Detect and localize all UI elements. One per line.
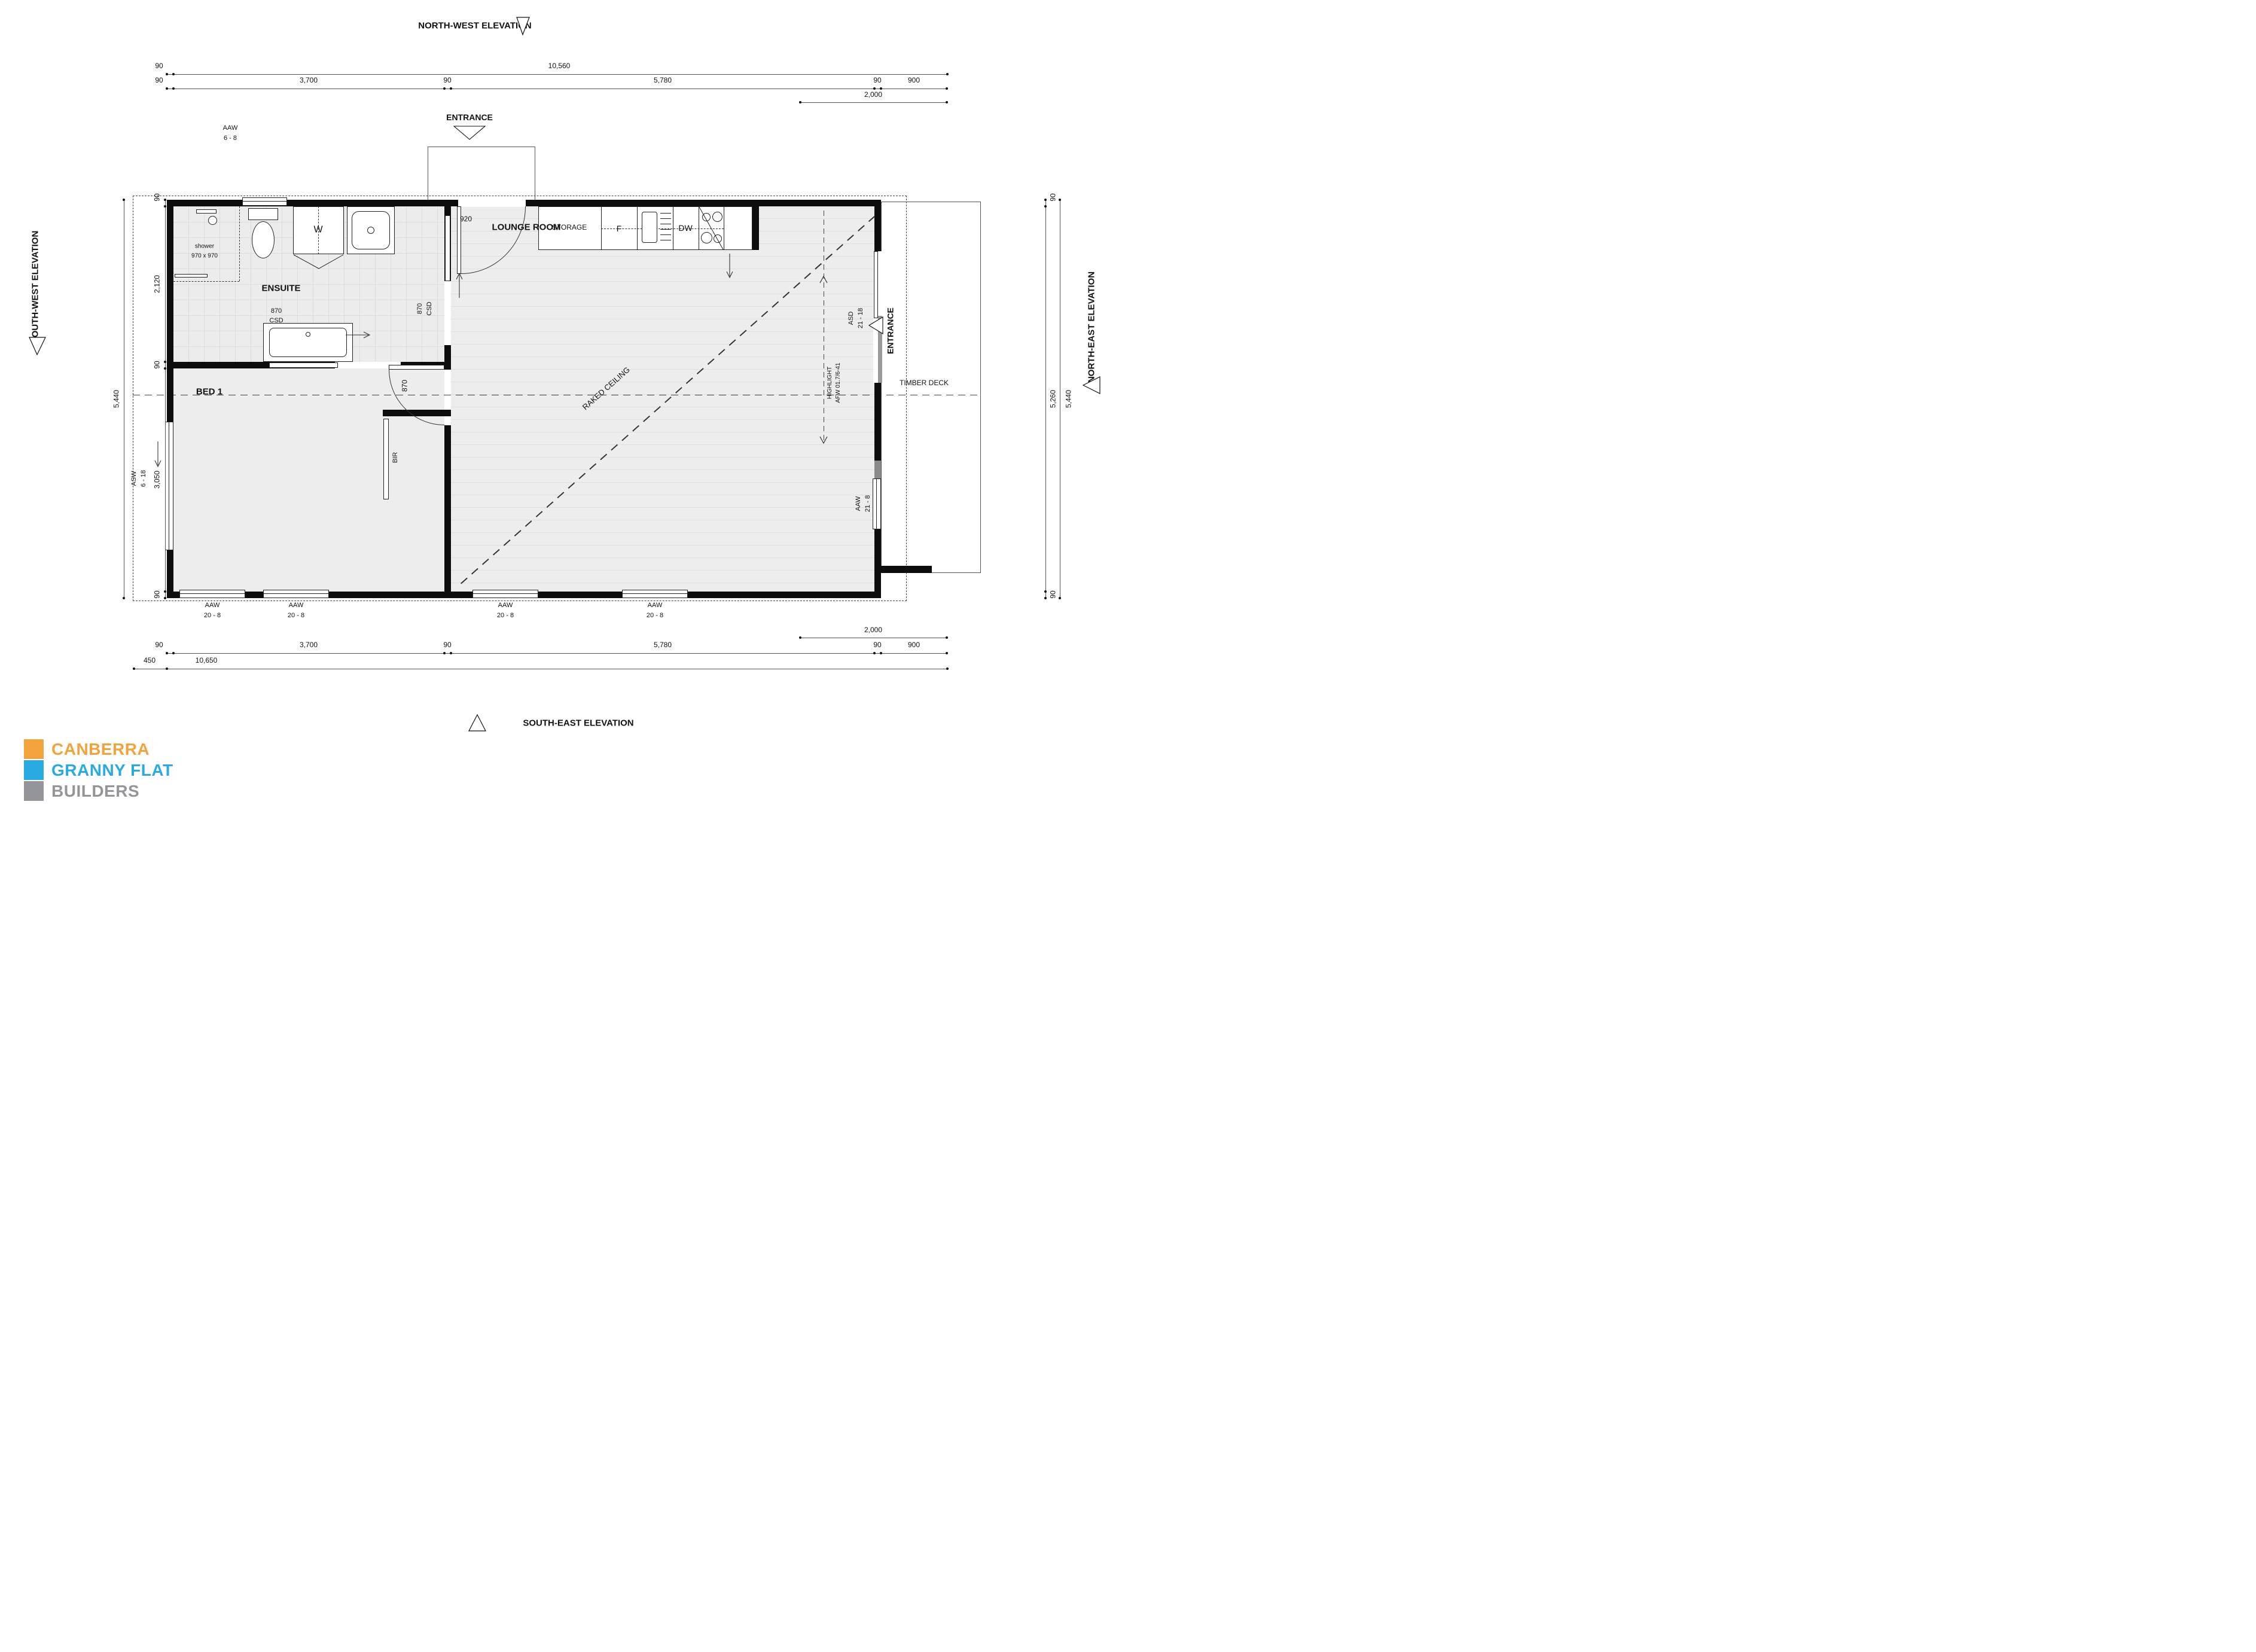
vanity-tap-icon (306, 332, 310, 337)
title-south-west-elevation: SOUTH-WEST ELEVATION (31, 231, 42, 344)
shower-rail-icon (175, 274, 208, 278)
label-window-b2-size: 20 - 8 (288, 611, 304, 620)
dim-top-90c: 90 (443, 76, 451, 86)
laundry-tub-drain-icon (367, 227, 374, 234)
front-door-opening (458, 198, 526, 207)
bed-door-leaf (389, 365, 444, 370)
dim-tick (164, 367, 166, 370)
dim-line-bottom-segments (167, 653, 947, 654)
entrance-top-arrow-icon (453, 126, 486, 141)
label-entrance-side: ENTRANCE (885, 307, 896, 354)
toilet-bowl-icon (252, 221, 275, 258)
entry-arrow-up-icon (455, 272, 464, 298)
label-shower: shower (195, 243, 214, 251)
dim-tick (166, 667, 168, 670)
dim-left-2120: 2,120 (153, 275, 162, 293)
dim-tick (164, 590, 166, 593)
window-top-aaw-6-8 (242, 197, 287, 206)
dim-tick (164, 361, 166, 363)
floor-plan-sheet: ENSUITE BED 1 LOUNGE ROOM STORAGE TIMBER… (0, 0, 1128, 826)
dim-left-3050: 3,050 (153, 471, 162, 489)
dim-right-5440: 5,440 (1065, 390, 1074, 408)
window-left-asw-6-18 (165, 422, 173, 550)
label-entrance-top: ENTRANCE (446, 112, 493, 123)
dim-left-90b: 90 (153, 361, 162, 368)
label-window-b4-size: 20 - 8 (647, 611, 663, 620)
logo-text-canberra: CANBERRA (51, 739, 150, 759)
dim-left-90: 90 (153, 193, 162, 201)
dim-right-5260: 5,260 (1049, 390, 1058, 408)
window-bottom-aaw-3 (472, 590, 538, 598)
logo-text-builders: BUILDERS (51, 781, 139, 801)
window-bottom-aaw-4 (622, 590, 688, 598)
dim-bot-3700: 3,700 (300, 641, 318, 650)
dim-tick (873, 87, 876, 90)
window-bottom-aaw-2 (263, 590, 329, 598)
logo-square-blue (24, 760, 44, 780)
south-east-marker-icon (468, 714, 487, 732)
bed-window-arrow-down-icon (154, 441, 162, 468)
dim-top-90b: 90 (155, 76, 163, 86)
label-window-b3-size: 20 - 8 (497, 611, 514, 620)
dim-bot-90c: 90 (873, 641, 881, 650)
label-ens-csd: CSD (269, 316, 283, 325)
toilet-cistern-icon (248, 208, 278, 220)
label-hall-csd-870: 870 (416, 303, 425, 314)
dim-tick (443, 87, 446, 90)
label-window-b2-aaw: AAW (289, 601, 304, 609)
hall-cavity-slider-leaf (445, 215, 450, 281)
dim-bot-10650: 10,650 (196, 656, 218, 666)
label-asd-size: 21 - 18 (857, 308, 865, 328)
wall-hall-b (444, 345, 451, 370)
north-west-marker-icon (516, 17, 531, 36)
label-window-left-asw: ASW (130, 471, 139, 486)
dim-tick (873, 652, 876, 654)
dim-tick (443, 652, 446, 654)
dim-line-right-overall (1060, 200, 1060, 598)
dim-tick (880, 87, 882, 90)
dim-bottom-2000: 2,000 (864, 626, 882, 635)
dim-line-left-overall (124, 200, 124, 598)
label-timber-deck: TIMBER DECK (900, 379, 949, 388)
dim-line-top-segments (167, 89, 947, 89)
room-label-ensuite: ENSUITE (261, 282, 300, 294)
kitchen-arrow-down-icon (725, 254, 734, 279)
highlight-arrow-down-icon (819, 436, 828, 444)
shower-rose-icon (208, 216, 217, 225)
entrance-side-arrow-icon (868, 316, 884, 335)
shower-screen-dashed-v (239, 206, 240, 281)
title-north-east-elevation: NORTH-EAST ELEVATION (1087, 272, 1098, 383)
label-window-b1-aaw: AAW (205, 601, 220, 609)
label-ens-csd-870: 870 (271, 307, 282, 315)
dim-line-left-segments (165, 200, 166, 598)
dim-line-top-overall (167, 74, 947, 75)
dim-line-top-2000 (800, 102, 947, 103)
eaves-setback-boundary (133, 196, 907, 601)
dim-line-bottom-overall (134, 669, 947, 669)
room-label-lounge: LOUNGE ROOM (492, 221, 561, 233)
dim-top-10560: 10,560 (548, 62, 571, 71)
dim-tick (172, 87, 175, 90)
slider-arrow-right-icon (346, 331, 371, 339)
asd-door-panel-1 (874, 251, 878, 318)
label-storage: STORAGE (552, 223, 587, 233)
dim-tick (172, 652, 175, 654)
section-datum-line (133, 395, 981, 395)
label-window-b1-size: 20 - 8 (204, 611, 221, 620)
label-highlight-code: AFW 01.7/6-41 (835, 362, 843, 403)
label-window-b3-aaw: AAW (498, 601, 513, 609)
title-south-east-elevation: SOUTH-EAST ELEVATION (523, 717, 633, 729)
label-window-left-size: 6 - 18 (140, 470, 148, 487)
window-sill-gray (874, 461, 881, 478)
label-fridge: F (617, 223, 622, 234)
washer-door-fold-icon (293, 254, 344, 270)
bench-separator (724, 206, 724, 250)
sink-bowl-icon (642, 212, 657, 243)
ensuite-cavity-slider-leaf (269, 362, 338, 368)
label-window-top-size: 6 - 8 (224, 134, 237, 142)
dim-line-right-segments (1045, 200, 1046, 598)
room-label-bed1: BED 1 (196, 386, 222, 398)
logo-text-granny-flat: GRANNY FLAT (51, 760, 173, 780)
highlight-arrow-up-icon (819, 276, 828, 284)
label-hall-csd: CSD (426, 301, 434, 315)
label-bir: BIR (392, 452, 400, 463)
dim-left-5440: 5,440 (112, 390, 121, 408)
label-dishwasher: DW (678, 222, 692, 233)
sink-drainer-icon (660, 213, 671, 242)
porch-outline (428, 147, 535, 200)
label-window-right-aaw: AAW (855, 496, 863, 511)
south-west-marker-icon (29, 337, 47, 356)
label-highlight: HIGHLIGHT (827, 367, 834, 399)
label-front-door-920: 920 (460, 215, 472, 224)
highlight-window-line (824, 211, 824, 444)
dim-tick (164, 205, 166, 208)
label-window-top-aaw: AAW (223, 124, 238, 132)
dim-top-900: 900 (908, 76, 920, 86)
dim-tick (172, 73, 175, 75)
dim-bot-5780: 5,780 (654, 641, 672, 650)
dim-bot-90: 90 (155, 641, 163, 650)
dim-top-3700: 3,700 (300, 76, 318, 86)
dim-tick (880, 652, 882, 654)
dim-tick (450, 87, 452, 90)
dim-bot-450: 450 (144, 656, 156, 666)
dim-top-2000: 2,000 (864, 90, 882, 100)
dim-right-90b: 90 (1049, 590, 1058, 598)
dim-top-90d: 90 (873, 76, 881, 86)
north-east-marker-icon (1083, 376, 1102, 395)
dim-line-bottom-2000 (800, 638, 947, 638)
label-window-b4-aaw: AAW (648, 601, 663, 609)
label-bed-door-870: 870 (401, 380, 410, 392)
label-shower-size: 970 x 970 (191, 252, 218, 260)
label-washer: W (313, 224, 322, 237)
shower-mixer-icon (196, 209, 217, 214)
dim-bot-90b: 90 (443, 641, 451, 650)
dim-bot-900: 900 (908, 641, 920, 650)
shower-screen-dashed-h (173, 281, 239, 282)
logo-square-orange (24, 739, 44, 759)
window-bottom-aaw-1 (179, 590, 245, 598)
dim-tick (450, 652, 452, 654)
cooktop-diagonal-icon (699, 206, 724, 250)
label-window-right-size: 21 - 8 (864, 495, 873, 512)
window-right-aaw-21-8 (873, 478, 881, 529)
bir-slider-panel (383, 419, 389, 499)
dim-top-90: 90 (155, 62, 163, 71)
dim-top-5780: 5,780 (654, 76, 672, 86)
wall-hall-c (444, 425, 451, 592)
wall-deck-stub (881, 566, 932, 573)
wall-kitchen-stub (752, 206, 759, 250)
logo-square-gray (24, 781, 44, 801)
dim-right-90: 90 (1049, 193, 1058, 201)
dim-tick (1044, 205, 1047, 208)
title-north-west-elevation: NORTH-WEST ELEVATION (418, 20, 531, 32)
label-asd-code: ASD (847, 312, 856, 325)
dim-tick (1044, 590, 1047, 593)
dim-left-90c: 90 (153, 590, 162, 598)
